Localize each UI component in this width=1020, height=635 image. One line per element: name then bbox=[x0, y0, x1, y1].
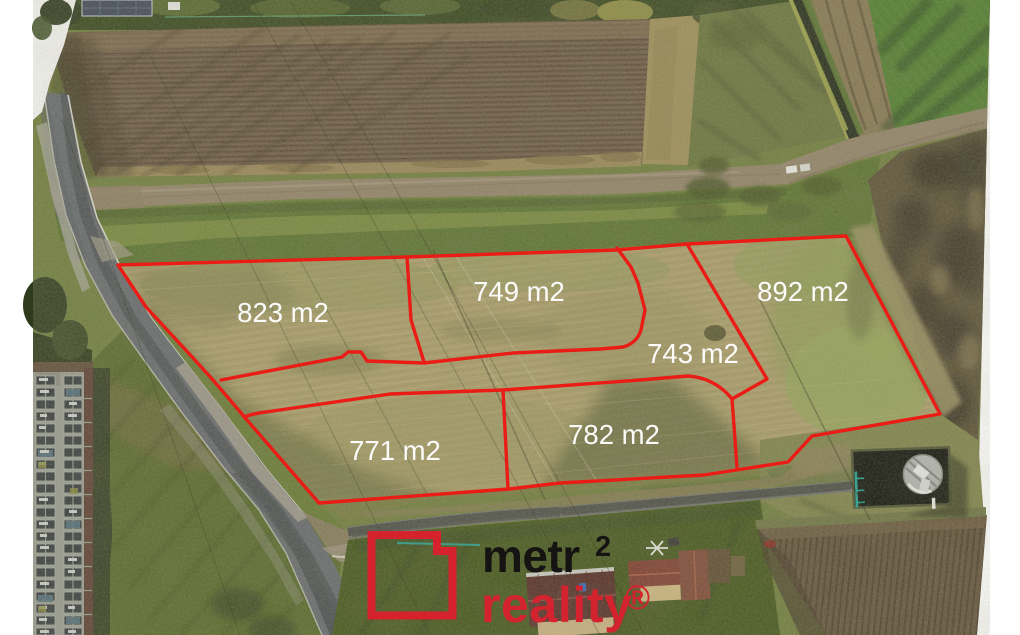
svg-text:782 m2: 782 m2 bbox=[568, 419, 660, 450]
svg-text:749 m2: 749 m2 bbox=[473, 276, 565, 307]
svg-text:®: ® bbox=[625, 579, 650, 617]
svg-text:892 m2: 892 m2 bbox=[757, 276, 849, 307]
svg-text:743 m2: 743 m2 bbox=[647, 338, 739, 369]
svg-text:metr: metr bbox=[482, 530, 580, 582]
svg-text:771 m2: 771 m2 bbox=[349, 435, 441, 466]
svg-text:823 m2: 823 m2 bbox=[237, 297, 329, 328]
svg-text:2: 2 bbox=[595, 531, 611, 563]
svg-text:reality: reality bbox=[481, 577, 633, 633]
